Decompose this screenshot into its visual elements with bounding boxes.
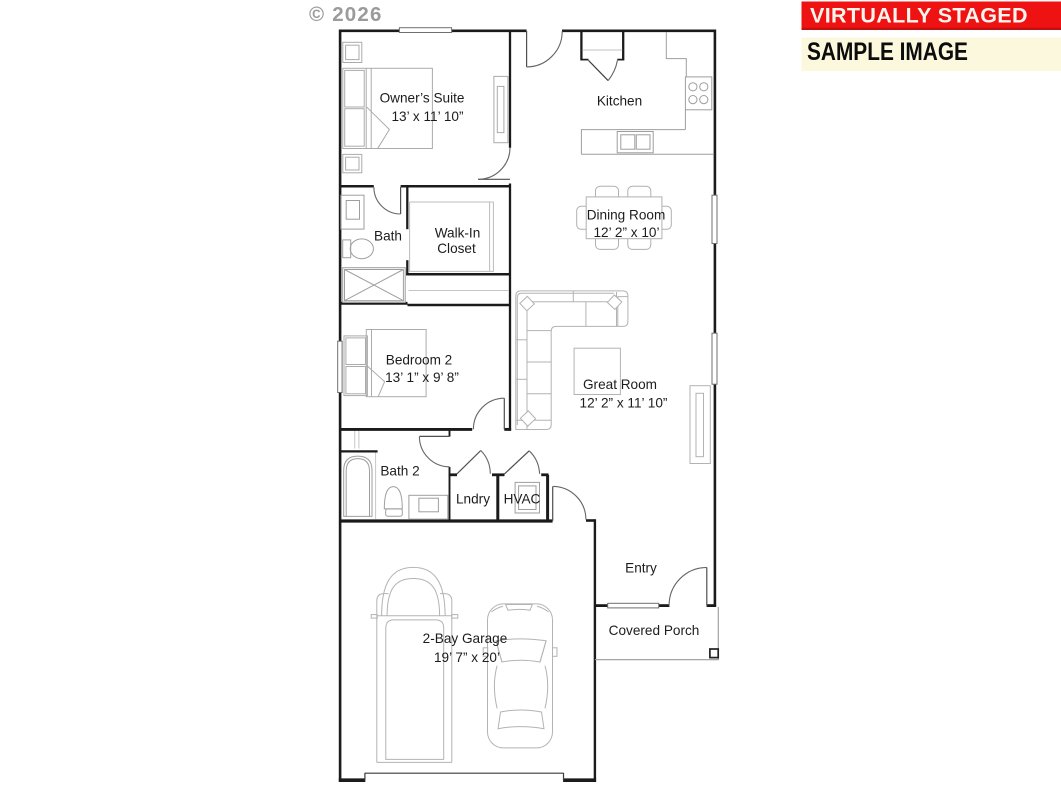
svg-text:Bath 2: Bath 2 (380, 463, 419, 478)
svg-text:Dining Room: Dining Room (587, 207, 666, 222)
svg-text:HVAC: HVAC (504, 491, 541, 506)
svg-text:Bedroom 2: Bedroom 2 (386, 352, 453, 367)
svg-text:SAMPLE IMAGE: SAMPLE IMAGE (807, 37, 968, 65)
svg-text:Bath: Bath (374, 228, 402, 243)
svg-text:13’ 1” x 9’ 8”: 13’ 1” x 9’ 8” (385, 370, 459, 385)
svg-text:Great Room: Great Room (583, 377, 657, 392)
svg-text:© 2026: © 2026 (309, 3, 383, 26)
svg-text:Kitchen: Kitchen (597, 93, 642, 108)
svg-text:Owner’s Suite: Owner’s Suite (380, 90, 465, 105)
svg-text:Entry: Entry (625, 560, 657, 575)
svg-text:Walk-In: Walk-In (435, 225, 481, 240)
svg-text:VIRTUALLY STAGED: VIRTUALLY STAGED (810, 4, 1028, 28)
svg-text:Closet: Closet (437, 241, 476, 256)
svg-text:12’ 2” x 10’: 12’ 2” x 10’ (594, 225, 660, 240)
svg-text:12’ 2” x 11’ 10”: 12’ 2” x 11’ 10” (580, 395, 668, 410)
svg-text:13’ x 11’ 10”: 13’ x 11’ 10” (391, 109, 464, 124)
svg-text:2-Bay Garage: 2-Bay Garage (423, 631, 508, 646)
svg-text:Lndry: Lndry (456, 491, 490, 506)
svg-text:19’ 7” x 20’: 19’ 7” x 20’ (434, 650, 500, 665)
svg-text:Covered Porch: Covered Porch (609, 623, 700, 638)
